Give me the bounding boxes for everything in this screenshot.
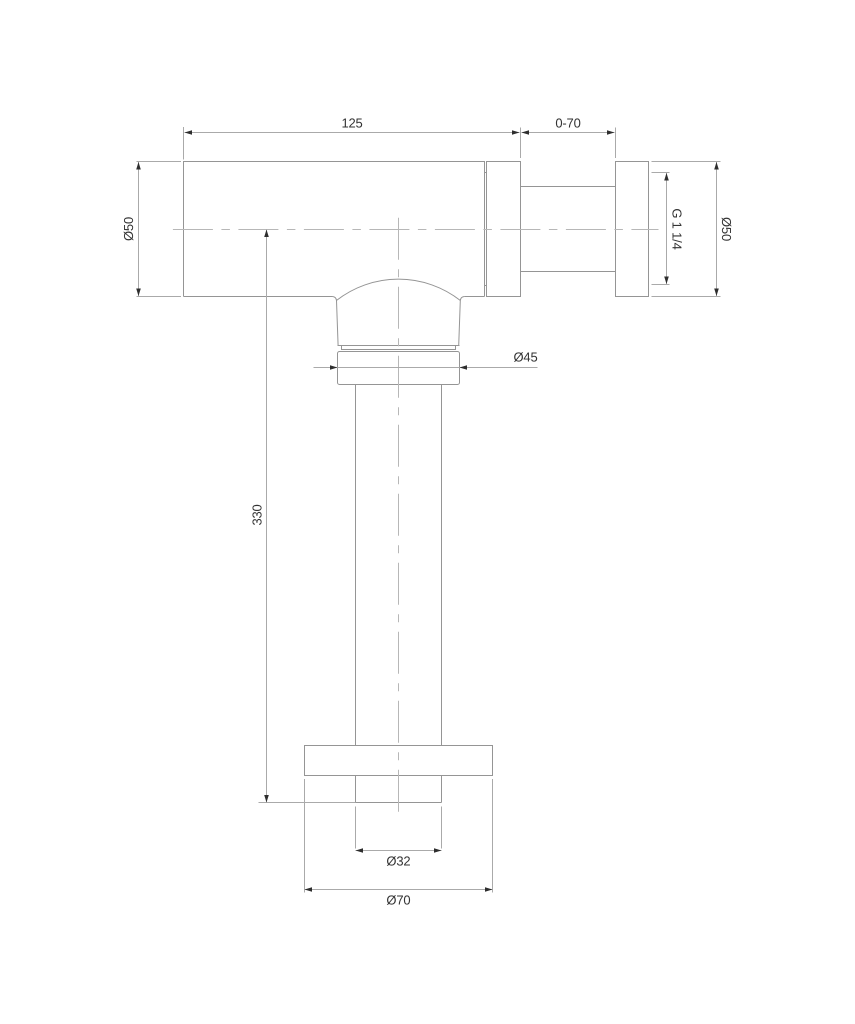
svg-text:G 1 1/4: G 1 1/4 (670, 208, 685, 249)
svg-text:Ø50: Ø50 (719, 217, 734, 241)
svg-text:Ø50: Ø50 (121, 217, 136, 241)
svg-text:330: 330 (249, 504, 264, 525)
svg-text:Ø32: Ø32 (386, 854, 410, 869)
svg-text:0-70: 0-70 (555, 115, 580, 130)
svg-text:Ø70: Ø70 (386, 892, 410, 907)
svg-text:125: 125 (341, 115, 362, 130)
svg-text:Ø45: Ø45 (514, 349, 538, 364)
